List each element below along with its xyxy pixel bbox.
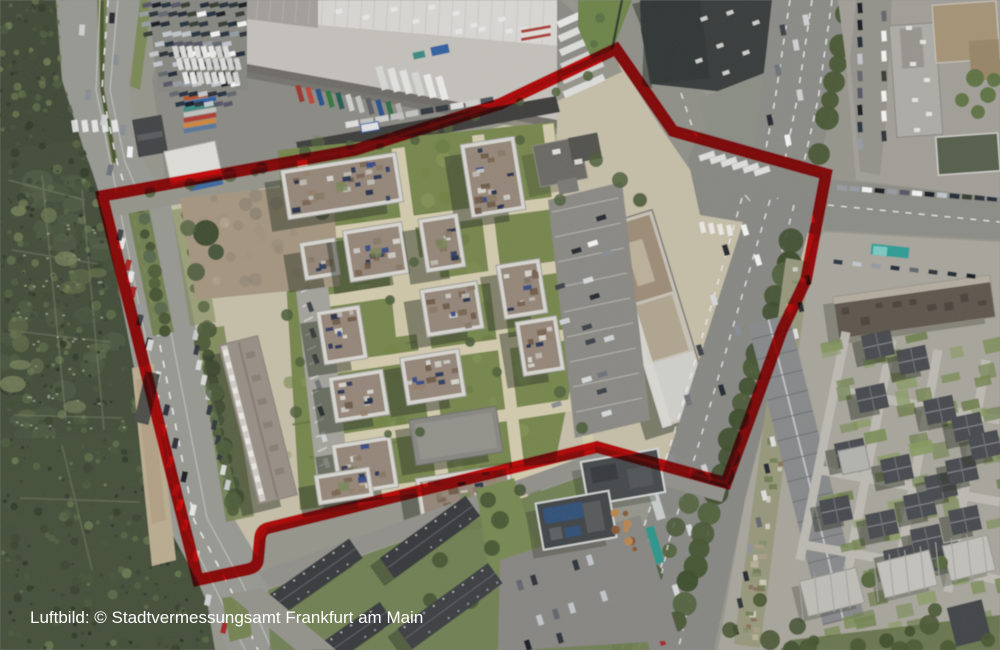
- svg-text:Luftbild: © Stadtvermessungsam: Luftbild: © Stadtvermessungsamt Frankfur…: [30, 608, 423, 627]
